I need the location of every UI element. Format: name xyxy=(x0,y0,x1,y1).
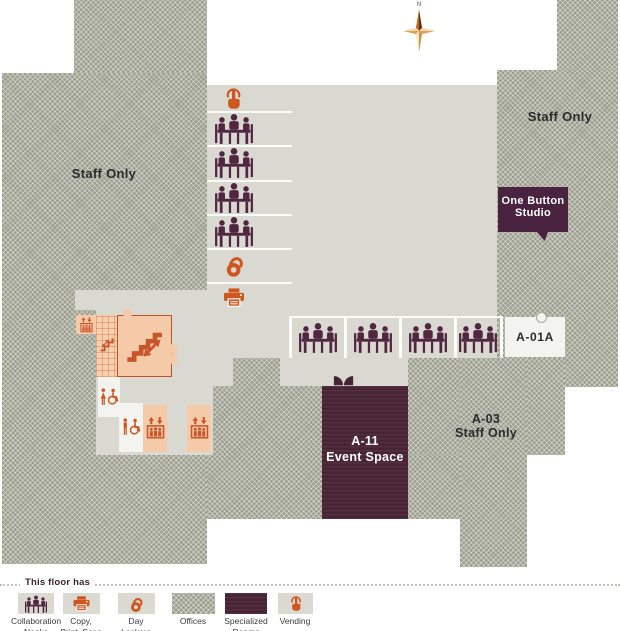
restroom-women-accessible[interactable] xyxy=(98,377,120,417)
restroom-men-accessible[interactable] xyxy=(119,403,143,452)
collaboration-nook-icon[interactable] xyxy=(212,113,256,144)
collaboration-nook-icon[interactable] xyxy=(406,322,450,353)
collaboration-nook-icon[interactable] xyxy=(456,322,500,353)
door-notch xyxy=(168,344,178,354)
staff-only-left-label: Staff Only xyxy=(54,166,154,181)
cell-divider xyxy=(289,318,292,358)
staff-only-right-label: Staff Only xyxy=(510,109,610,124)
legend-label-copy-print-scan: Copy,Print, Scan xyxy=(51,616,111,631)
room-a11-event-space[interactable]: A-11 Event Space xyxy=(322,386,408,519)
copy-print-scan-icon[interactable] xyxy=(222,288,246,308)
elevator-room[interactable] xyxy=(143,405,167,452)
legend-label-day-lockers: DayLockers xyxy=(106,616,166,631)
a03-label-line2: Staff Only xyxy=(436,426,536,440)
stair-ramp-room[interactable] xyxy=(96,315,117,377)
elevator-room[interactable] xyxy=(187,405,211,452)
day-locker-icon[interactable] xyxy=(224,253,245,278)
legend-title: This floor has xyxy=(20,577,95,588)
cell-divider xyxy=(500,318,503,358)
staff-area-right-top xyxy=(557,0,618,72)
legend-swatch-copy-print-scan xyxy=(63,593,100,614)
corridor-to-stairs xyxy=(75,290,207,310)
legend-label-offices: Offices xyxy=(163,616,223,627)
event-space-label-line1: A-11 xyxy=(322,434,408,448)
legend-swatch-offices xyxy=(172,593,215,614)
room-a01a[interactable]: A-01A xyxy=(505,317,565,357)
a03-label-line1: A-03 xyxy=(436,412,536,426)
a03-label: A-03 Staff Only xyxy=(436,412,536,440)
floor-map-page: A-01A One Button Studio A-11 Event Space… xyxy=(0,0,620,631)
small-elevator-room[interactable] xyxy=(76,315,97,334)
double-door-icon xyxy=(333,374,354,386)
door-notch xyxy=(536,312,547,323)
cell-divider xyxy=(207,248,292,250)
compass-star xyxy=(398,8,440,54)
door-notch xyxy=(168,354,178,364)
collaboration-nook-icon[interactable] xyxy=(296,322,340,353)
legend-swatch-day-lockers xyxy=(118,593,155,614)
staff-area-a03-column xyxy=(460,358,527,567)
door-notch xyxy=(123,309,132,318)
cell-divider xyxy=(289,316,503,318)
event-space-label-line2: Event Space xyxy=(322,450,408,464)
legend-swatch-collaboration-nooks xyxy=(18,593,54,614)
cell-divider xyxy=(207,282,292,284)
legend-label-vending: Vending xyxy=(265,616,325,627)
stairwell-room[interactable] xyxy=(117,315,172,377)
room-a01a-label: A-01A xyxy=(505,330,565,344)
legend-swatch-specialized-rooms xyxy=(225,593,267,614)
one-button-studio-label-line1: One Button xyxy=(498,195,568,207)
collaboration-nook-icon[interactable] xyxy=(212,182,256,213)
collaboration-nook-icon[interactable] xyxy=(212,147,256,178)
one-button-studio-label-line2: Studio xyxy=(498,207,568,219)
vending-touch-icon[interactable] xyxy=(223,87,244,110)
legend-swatch-vending xyxy=(278,593,313,614)
room-one-button-studio[interactable]: One Button Studio xyxy=(498,187,568,232)
collaboration-nook-icon[interactable] xyxy=(212,216,256,247)
collaboration-nook-icon[interactable] xyxy=(351,322,395,353)
cell-divider xyxy=(399,318,402,358)
cell-divider xyxy=(344,318,347,358)
compass-rose: N xyxy=(396,2,442,54)
